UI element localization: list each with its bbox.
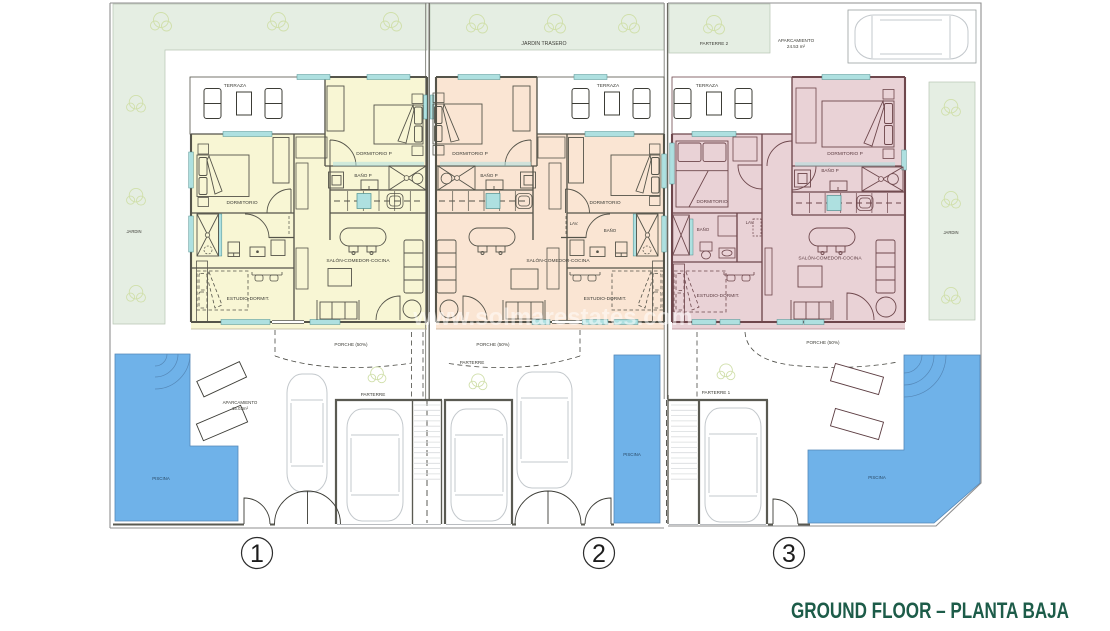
svg-text:PARTERRE 2: PARTERRE 2 bbox=[700, 41, 729, 46]
svg-text:PARTERRE 1: PARTERRE 1 bbox=[702, 390, 731, 395]
svg-text:APARCAMIENTO: APARCAMIENTO bbox=[778, 38, 815, 43]
svg-text:SALÓN-COMEDOR-COCINA: SALÓN-COMEDOR-COCINA bbox=[326, 257, 390, 264]
svg-text:PARTERRE: PARTERRE bbox=[460, 360, 485, 365]
svg-text:DORMITORIO P: DORMITORIO P bbox=[452, 151, 488, 157]
svg-text:PISCINA: PISCINA bbox=[868, 475, 886, 480]
svg-text:ESTUDIO-DORMIT.: ESTUDIO-DORMIT. bbox=[584, 296, 627, 302]
svg-text:PARTERRE: PARTERRE bbox=[361, 392, 386, 397]
svg-text:15.03m²: 15.03m² bbox=[232, 406, 249, 411]
svg-text:ESTUDIO-DORMIT.: ESTUDIO-DORMIT. bbox=[227, 296, 270, 302]
svg-text:TERRAZA: TERRAZA bbox=[597, 83, 620, 89]
svg-text:PORCHE (50%): PORCHE (50%) bbox=[806, 340, 840, 345]
svg-text:TERRAZA: TERRAZA bbox=[224, 83, 247, 89]
svg-text:BAÑO P: BAÑO P bbox=[821, 167, 838, 173]
svg-text:SALÓN-COMEDOR-COCINA: SALÓN-COMEDOR-COCINA bbox=[798, 255, 862, 262]
svg-text:PISCINA: PISCINA bbox=[152, 476, 170, 481]
svg-text:LAV.: LAV. bbox=[570, 221, 579, 226]
svg-text:JARDIN: JARDIN bbox=[126, 229, 141, 234]
svg-text:www.solmarestates.com: www.solmarestates.com bbox=[412, 304, 692, 331]
svg-text:GROUND FLOOR – PLANTA BAJA: GROUND FLOOR – PLANTA BAJA bbox=[791, 598, 1069, 623]
svg-text:SALÓN-COMEDOR-COCINA: SALÓN-COMEDOR-COCINA bbox=[526, 257, 590, 264]
svg-text:DORMITORIO P: DORMITORIO P bbox=[356, 151, 392, 157]
svg-text:24.53 m²: 24.53 m² bbox=[787, 44, 806, 49]
svg-text:DORMITORIO P: DORMITORIO P bbox=[827, 151, 863, 157]
svg-text:2: 2 bbox=[592, 540, 606, 568]
svg-text:BAÑO P: BAÑO P bbox=[480, 172, 497, 178]
svg-text:PORCHE (50%): PORCHE (50%) bbox=[476, 342, 510, 347]
svg-text:BAÑO: BAÑO bbox=[604, 228, 617, 233]
svg-text:BAÑO: BAÑO bbox=[697, 227, 710, 232]
svg-text:JARDIN: JARDIN bbox=[943, 230, 958, 235]
svg-text:3: 3 bbox=[782, 540, 796, 568]
svg-text:1: 1 bbox=[250, 540, 264, 568]
svg-text:APARCAMIENTO: APARCAMIENTO bbox=[223, 400, 258, 405]
svg-text:DORMITORIO: DORMITORIO bbox=[696, 199, 727, 205]
svg-text:BAÑO P: BAÑO P bbox=[354, 172, 371, 178]
svg-text:PORCHE (50%): PORCHE (50%) bbox=[334, 342, 368, 347]
svg-text:PISCINA: PISCINA bbox=[623, 452, 641, 457]
svg-text:DORMITORIO: DORMITORIO bbox=[589, 200, 620, 206]
svg-text:ESTUDIO-DORMIT.: ESTUDIO-DORMIT. bbox=[697, 293, 740, 299]
svg-text:JARDIN TRASERO: JARDIN TRASERO bbox=[521, 41, 566, 47]
svg-text:DORMITORIO: DORMITORIO bbox=[226, 200, 257, 206]
svg-text:TERRAZA: TERRAZA bbox=[696, 83, 719, 89]
